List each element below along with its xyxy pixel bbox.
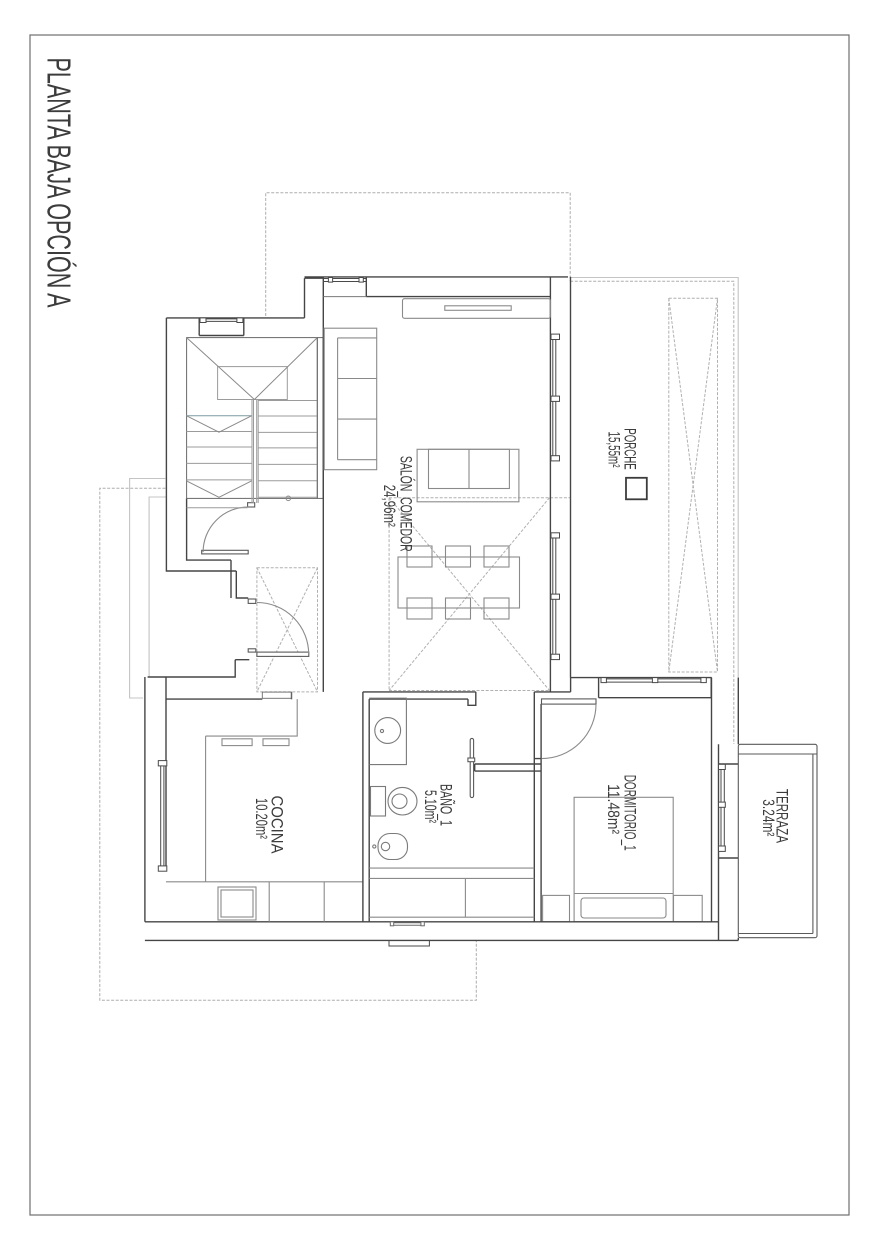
svg-text:3.24m²: 3.24m² <box>758 799 776 836</box>
svg-text:24,96m²: 24,96m² <box>380 485 398 527</box>
svg-text:15,55m²: 15,55m² <box>604 432 622 468</box>
svg-text:BAÑO_1: BAÑO_1 <box>436 784 455 826</box>
svg-text:COCINA: COCINA <box>267 796 285 854</box>
svg-text:PLANTA BAJA OPCIÓN A: PLANTA BAJA OPCIÓN A <box>40 57 79 307</box>
svg-text:11.48m²: 11.48m² <box>604 784 622 834</box>
svg-text:PORCHE: PORCHE <box>620 428 638 470</box>
svg-text:SALÓN_COMEDOR: SALÓN_COMEDOR <box>396 456 415 552</box>
svg-text:DORMITORIO_1: DORMITORIO_1 <box>620 775 638 851</box>
svg-text:5.10m²: 5.10m² <box>420 790 438 823</box>
svg-text:10.20m²: 10.20m² <box>252 798 270 839</box>
